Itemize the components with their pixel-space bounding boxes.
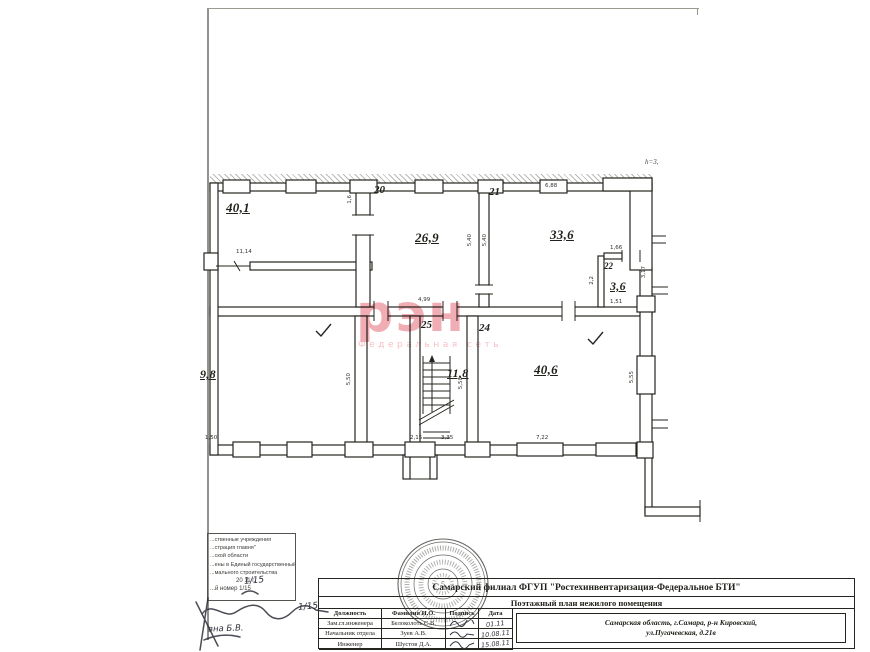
dim-label: 2,15 — [410, 435, 422, 441]
dim-label: 1,50 — [205, 435, 217, 441]
handwritten-date: 01.11 — [486, 619, 505, 628]
stair-direction-arrow — [429, 355, 435, 362]
row-name: Шустов Д.А. — [382, 639, 446, 650]
dim-label: 1,51 — [610, 299, 622, 305]
row-name: Белоколоть С.В. — [382, 619, 446, 629]
room-area-3-6: 3,6 — [610, 279, 626, 294]
dim-label: 1,66 — [610, 245, 622, 251]
room-area-26-9: 26,9 — [415, 230, 439, 246]
room-area-40-6: 40,6 — [534, 362, 558, 378]
row-position: Зам.гл.инженера — [319, 619, 382, 629]
dim-label: 1,6 — [347, 195, 353, 204]
row-signature — [446, 619, 479, 629]
dim-label: 3,35 — [441, 435, 453, 441]
col-header-name: Фамилия И.О. — [382, 609, 446, 619]
room-area-9-8: 9,8 — [200, 367, 216, 382]
stamp-line: ...ены в Единый государственный — [210, 561, 295, 569]
dim-label: 5,50 — [346, 373, 352, 385]
col-header-signature: Подпись — [446, 609, 479, 619]
room-number-24: 24 — [479, 322, 490, 334]
address-line-2: ул.Пугачевская, д.21в — [646, 628, 716, 638]
dim-label: 4,99 — [418, 297, 430, 303]
room-number-25: 25 — [421, 319, 432, 331]
stamp-line: ...ственные учреждения — [210, 536, 295, 544]
door-gaps — [357, 215, 575, 318]
dim-label: 5,40 — [467, 234, 473, 246]
row-position: Начальник отдела — [319, 629, 382, 639]
row-date: 10.08.11 — [479, 629, 513, 639]
row-date: 01.11 — [479, 619, 513, 629]
dim-label: 5,55 — [629, 371, 635, 383]
room-number-22: 22 — [604, 261, 613, 271]
object-address: Самарская область, г.Самара, р-н Кировск… — [516, 613, 846, 643]
organization-name: Самарский филиал ФГУП "Ростехинвентариза… — [319, 579, 854, 597]
row-signature — [446, 629, 479, 639]
stamp-line: ...страция главня" — [210, 544, 295, 552]
dim-label: 6,88 — [545, 183, 557, 189]
signature-icon — [449, 630, 475, 638]
height-note: h=3, — [645, 158, 658, 166]
dim-label: 5,40 — [482, 234, 488, 246]
title-block: Самарский филиал ФГУП "Ростехинвентариза… — [318, 578, 855, 649]
col-header-position: Должность — [319, 609, 382, 619]
document-title: Поэтажный план нежилого помещения — [319, 597, 854, 609]
room-area-40-1: 40,1 — [226, 200, 250, 216]
dim-label: 11,14 — [236, 249, 252, 255]
dim-label: 3,17 — [641, 266, 647, 278]
row-position: Инженер — [319, 639, 382, 650]
col-header-date: Дата — [479, 609, 513, 619]
handwritten-date: 15.08.11 — [481, 639, 511, 649]
signature-icon — [449, 620, 475, 628]
handwritten-date: 10.08.11 — [481, 629, 511, 639]
row-date: 15.08.11 — [479, 639, 513, 650]
room-area-33-6: 33,6 — [550, 227, 574, 243]
dim-label: 5,50 — [458, 377, 464, 389]
row-name: Зуев А.В. — [382, 629, 446, 639]
room-number-20: 20 — [374, 184, 385, 196]
walls — [210, 178, 700, 516]
signature-icon — [449, 640, 475, 649]
dim-label: 2,2 — [589, 276, 595, 285]
room-number-21: 21 — [489, 186, 500, 198]
row-signature — [446, 639, 479, 650]
address-line-1: Самарская область, г.Самара, р-н Кировск… — [605, 618, 757, 628]
stamp-line: ...ской области — [210, 552, 295, 560]
dim-label: 7,22 — [536, 435, 548, 441]
